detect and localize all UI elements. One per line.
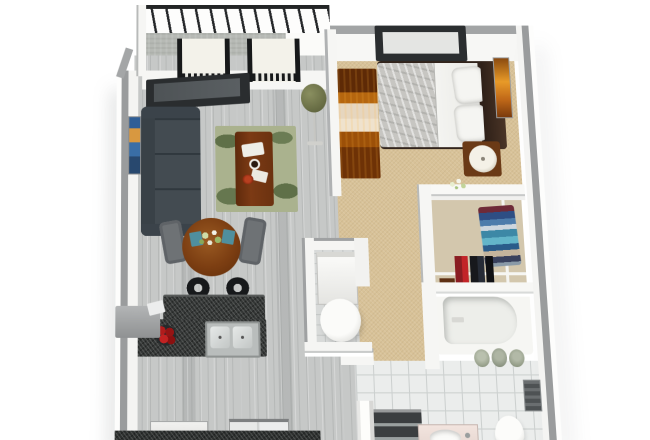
- tray: [241, 142, 265, 157]
- lamp-finial: [481, 157, 485, 161]
- half-wall-flowers: [444, 176, 471, 192]
- sofa-back: [141, 107, 155, 236]
- sofa: [141, 107, 201, 236]
- sofa-cushions: [155, 118, 201, 224]
- sink-basin: [233, 326, 253, 348]
- bedroom-window: [374, 26, 467, 62]
- kitchen-sink: [205, 321, 261, 357]
- lounge-chair-slats: [252, 73, 295, 81]
- cup: [249, 159, 260, 170]
- bedroom-closet-half-wall: [425, 184, 526, 200]
- drain: [241, 336, 244, 339]
- utility-bottom-wall: [304, 342, 372, 357]
- sofa-arm: [141, 107, 200, 119]
- lounge-chair: [247, 39, 301, 82]
- vanity-faucet: [465, 433, 470, 438]
- flower-centerpiece: [196, 226, 226, 250]
- table-lamp: [468, 145, 497, 172]
- living-wall-art: [128, 116, 141, 174]
- water-heater: [320, 299, 362, 342]
- washer: [316, 252, 358, 305]
- coffee-table: [235, 132, 274, 206]
- bathtub-basin: [442, 297, 518, 344]
- kitchen-bath-wall-stub: [357, 401, 375, 440]
- floor-plan-canvas: [0, 0, 650, 440]
- towel-roll: [473, 348, 492, 368]
- bathroom-cabinet: [369, 409, 423, 440]
- tub-faucet: [452, 317, 465, 322]
- utility-right-wall: [354, 238, 370, 287]
- kitchen-base-counter: [115, 431, 321, 440]
- vanity: [418, 424, 480, 440]
- vanity-sink: [429, 430, 461, 440]
- bathtub: [434, 291, 534, 355]
- rolled-towels: [474, 348, 531, 369]
- towel-roll: [491, 348, 508, 367]
- sink-basin: [210, 326, 230, 348]
- plant: [301, 84, 327, 113]
- blanket: [377, 63, 438, 147]
- bed: [377, 61, 507, 149]
- drain: [218, 336, 221, 339]
- towel-roll: [508, 348, 525, 368]
- dish: [242, 174, 253, 184]
- bedroom-window-glass: [383, 32, 460, 54]
- dresser-grain: [337, 69, 380, 179]
- floor-plan: [0, 9, 650, 440]
- dresser: [337, 69, 380, 179]
- balcony-side-post: [136, 5, 146, 76]
- tub-top-wall: [430, 282, 534, 296]
- kitchen-cabinet: [115, 306, 160, 338]
- living-window-glass: [154, 78, 240, 102]
- towel-rack: [523, 380, 543, 412]
- plant-stand-base: [307, 141, 323, 145]
